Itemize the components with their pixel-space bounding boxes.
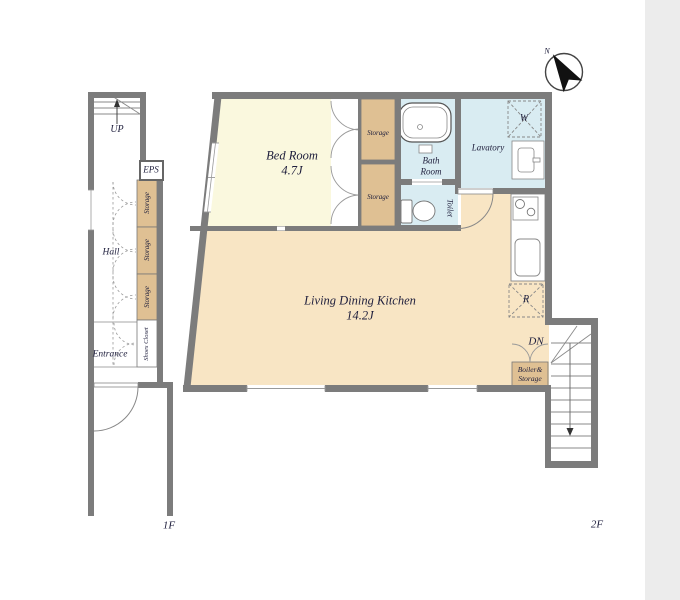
f2-ldk-label: Living Dining Kitchen 14.2J [304, 293, 416, 323]
f2-bedroom-name: Bed Room [266, 148, 318, 163]
f2-bath-label-line2: Room [421, 166, 442, 177]
f2-kitchen-sink [515, 239, 540, 276]
f2-ldk-size: 14.2J [304, 308, 416, 323]
floor-plan-canvas: UP EPS Hall Storage Storage Storage Shoe… [0, 0, 680, 600]
f2-washer-label: W [520, 113, 528, 125]
f2-lavatory-label: Lavatory [472, 143, 505, 154]
f1-storage-3-label: Storage [143, 286, 151, 308]
f2-boiler-label-line2: Storage [518, 375, 543, 384]
f2-bath-label-line1: Bath [421, 155, 442, 166]
f1-closet-door-arcs [113, 182, 136, 365]
f2-boiler-label: Boiler& Storage [518, 366, 543, 384]
first-floor-plan [88, 92, 174, 516]
f2-dn-label: DN [528, 336, 543, 349]
f2-fridge-label: R [523, 294, 529, 306]
f2-ldk-name: Living Dining Kitchen [304, 293, 416, 308]
page-margin-strip [645, 0, 680, 600]
f1-up-label: UP [110, 124, 123, 136]
f1-hall-label: Hall [103, 247, 120, 258]
f2-toilet-label: Toilet [445, 199, 454, 217]
f2-bath-label: Bath Room [421, 155, 442, 176]
f1-floor-label: 1F [163, 520, 175, 533]
f2-bath-door [419, 145, 432, 153]
f1-shoes-closet-label: Shoes Closet [143, 327, 151, 360]
f2-toilet-door-leaf [458, 189, 493, 194]
f2-bedroom-label: Bed Room 4.7J [266, 148, 318, 178]
f2-stairwell-floor [551, 325, 591, 461]
f2-storage-1-label: Storage [367, 129, 389, 137]
second-floor-plan [183, 92, 598, 468]
f1-walls [88, 92, 173, 516]
f1-entrance-label: Entrance [93, 349, 128, 360]
f1-storage-1-label: Storage [143, 192, 151, 214]
f2-bathtub [399, 103, 451, 142]
f1-storage-2-label: Storage [143, 239, 151, 261]
f2-vanity-sink [512, 141, 544, 179]
f2-kitchen-counter [511, 194, 545, 281]
f1-entrance-door [94, 382, 138, 431]
f2-floor-label: 2F [591, 519, 603, 532]
f2-storage-2-label: Storage [367, 193, 389, 201]
f2-closet-door-recess [331, 95, 361, 227]
f1-window [88, 190, 95, 230]
f1-eps-label: EPS [143, 165, 159, 176]
compass-north-label: N [544, 46, 549, 55]
f2-toilet-fixture [401, 200, 435, 223]
f2-bedroom-size: 4.7J [266, 163, 318, 178]
